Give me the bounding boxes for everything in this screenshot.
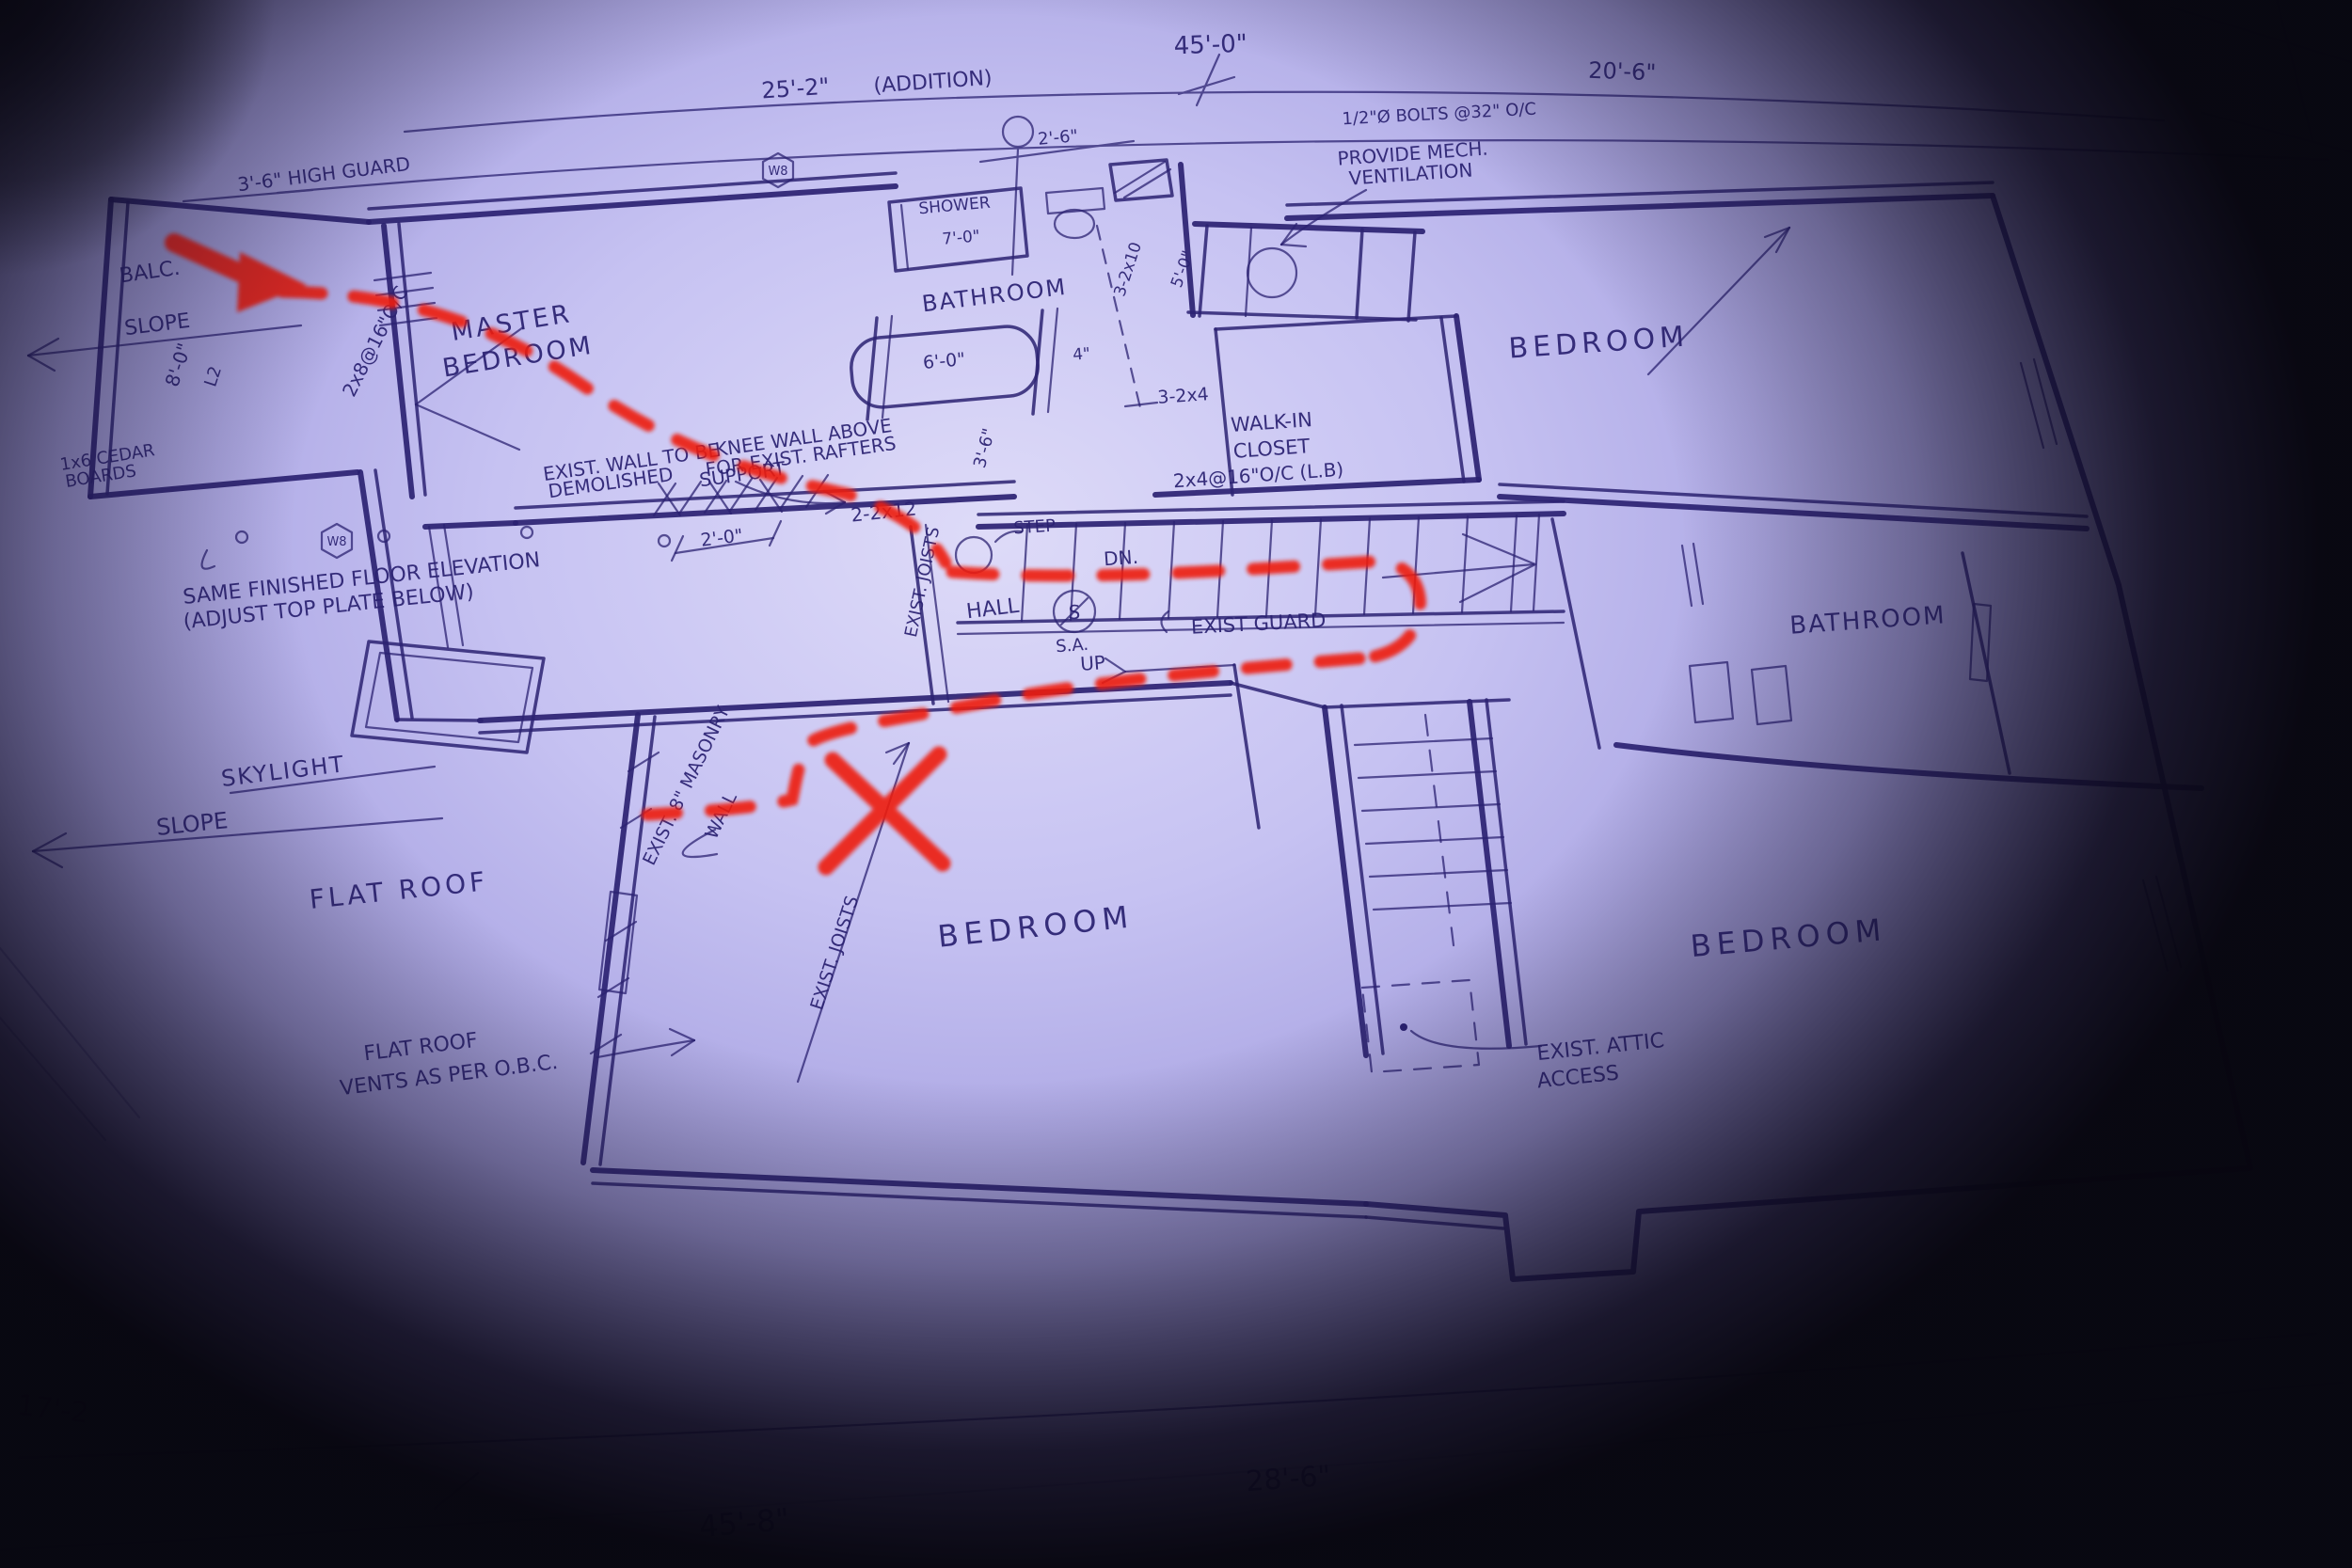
top-walls	[369, 173, 2250, 1168]
room-label-walkin-1: WALK-IN	[1230, 408, 1312, 436]
room-label-bathroom-right: BATHROOM	[1788, 601, 1947, 641]
plan-labels: BALC. SLOPE 8'-0" L2 2x8@16"O/C 3'-6" HI…	[15, 30, 1947, 1545]
dim-beam-3-2x10: 3-2x10	[1111, 240, 1146, 299]
vent-stack-icon	[1003, 117, 1033, 147]
room-label-bedroom-br: BEDROOM	[1689, 911, 1888, 964]
note-step: STEP	[1013, 515, 1057, 538]
dim-post-3-2x4: 3-2x4	[1157, 384, 1210, 408]
note-dn: DN.	[1103, 546, 1138, 571]
room-label-bedroom-mid: BEDROOM	[936, 898, 1136, 955]
note-attic-2: ACCESS	[1536, 1062, 1620, 1094]
w8-label: W8	[326, 535, 346, 549]
dim-step-depth: 2'-0"	[700, 525, 744, 550]
red-arrow-icon	[237, 252, 307, 312]
w8-label: W8	[768, 165, 787, 179]
dim-shower-len: 7'-0"	[942, 227, 981, 248]
dim-bottom-left: 45'-8"	[697, 1501, 790, 1544]
vent-fan-icon	[1248, 248, 1296, 297]
dim-right-span: 20'-6"	[1588, 57, 1657, 86]
stairs-lower-block	[1325, 700, 1541, 1072]
dim-overall-top: 45'-0"	[1173, 30, 1248, 61]
toilet-icon	[1055, 210, 1094, 238]
dim-addition-note: (ADDITION)	[873, 67, 993, 99]
dim-gap: 4"	[1072, 344, 1090, 365]
dim-addition-span: 25'-2"	[760, 73, 830, 104]
note-slope-upper: SLOPE	[123, 309, 191, 341]
room-label-walkin-2: CLOSET	[1232, 435, 1311, 463]
bedroom-tr-walls	[1500, 228, 2087, 529]
dim-left-edge: 17'-2	[15, 1389, 90, 1431]
skylight-roof	[28, 325, 694, 1057]
room-label-balcony: BALC.	[118, 257, 182, 289]
note-attic-1: EXIST. ATTIC	[1535, 1029, 1665, 1066]
dim-balcony-width: 8'-0"	[161, 341, 196, 389]
room-label-flat-roof: FLAT ROOF	[308, 865, 489, 915]
dim-vent-width: 5'-0"	[1168, 248, 1199, 291]
room-label-bathroom-top: BATHROOM	[920, 274, 1068, 318]
red-annotations	[174, 243, 1421, 867]
room-label-hall: HALL	[965, 594, 1021, 625]
dim-bottom-mid: 28'-6"	[1245, 1460, 1331, 1498]
note-vents-1: FLAT ROOF	[362, 1029, 479, 1067]
dim-l2: L2	[200, 364, 226, 389]
note-joists-bed: EXIST. JOISTS	[806, 894, 863, 1013]
note-up: UP	[1079, 651, 1105, 675]
blueprint-photo: BALC. SLOPE 8'-0" L2 2x8@16"O/C 3'-6" HI…	[0, 0, 2352, 1568]
floorplan-svg: BALC. SLOPE 8'-0" L2 2x8@16"O/C 3'-6" HI…	[0, 0, 2352, 1568]
smoke-alarm-letter: S	[1069, 601, 1081, 624]
bathroom-right-walls	[1552, 519, 2201, 788]
dim-toilet-clear: 2'-6"	[1037, 126, 1078, 150]
red-arrow-shaft	[174, 243, 246, 276]
vent-closet	[1188, 190, 1422, 321]
dim-stair-head: 3'-6"	[970, 426, 999, 470]
note-bolts: 1/2"Ø BOLTS @32" O/C	[1342, 100, 1537, 130]
dim-tub-len: 6'-0"	[922, 349, 966, 373]
note-exist-guard: EXIST GUARD	[1190, 609, 1327, 638]
bottom-walls	[1366, 1168, 2250, 1279]
